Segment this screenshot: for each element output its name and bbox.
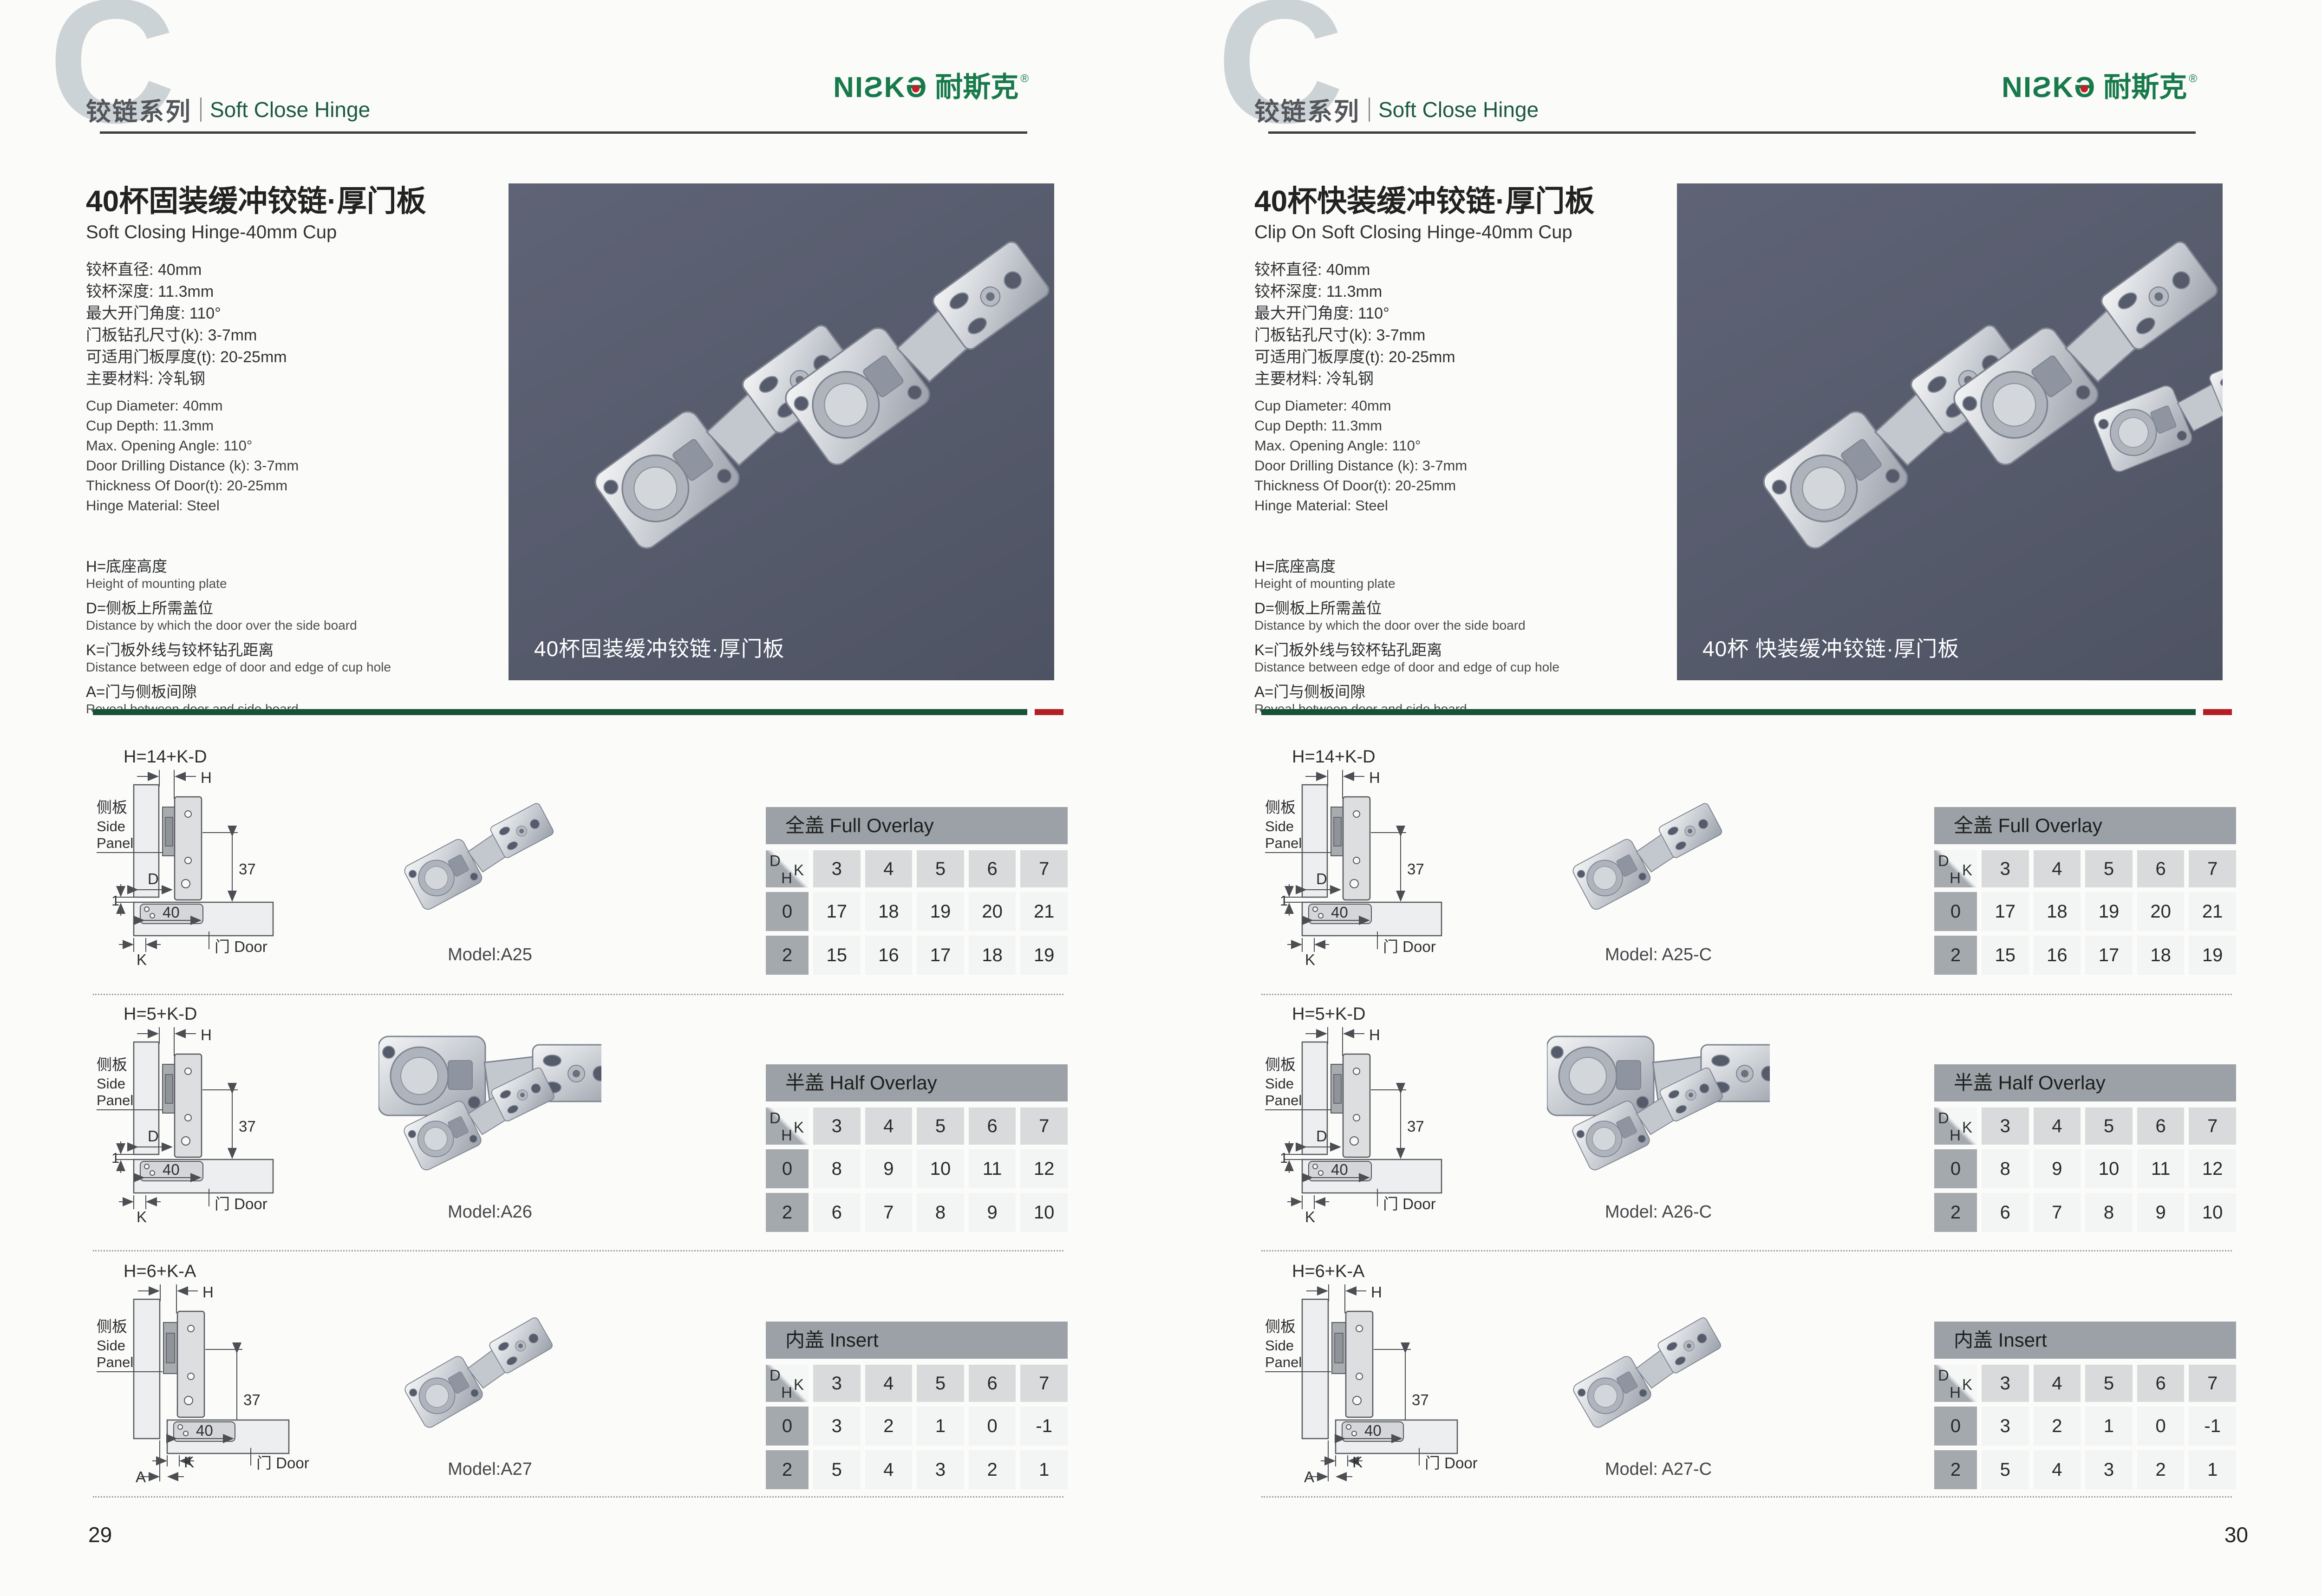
table-cell: 4 — [865, 1450, 913, 1489]
svg-text:门 Door: 门 Door — [215, 1195, 267, 1212]
series-title-en: Soft Close Hinge — [1378, 97, 1539, 122]
table-grid: D K H 3 4 5 6 7 0 8 9 10 11 12 2 6 7 8 9 — [766, 1107, 1068, 1232]
hinge-thumbnail — [378, 761, 601, 928]
specs-cn: 铰杯直径: 40mm 铰杯深度: 11.3mm 最大开门角度: 110° 门板钻… — [1254, 259, 1455, 390]
table-cell: 20 — [2137, 892, 2185, 931]
table-cell: 1 — [1020, 1450, 1068, 1489]
table-cell: 8 — [813, 1149, 861, 1188]
table-grid: D K H 3 4 5 6 7 0 3 2 1 0 -1 2 5 4 3 2 — [1934, 1365, 2236, 1489]
spec-line: 铰杯直径: 40mm — [1254, 259, 1455, 281]
table-cell: 15 — [1982, 936, 2029, 975]
brand-name-cn: 耐斯克 — [2103, 73, 2187, 101]
h-row-header: 2 — [766, 936, 809, 975]
table-cell: 12 — [2189, 1149, 2236, 1188]
svg-text:K: K — [1305, 1208, 1315, 1225]
table-cell: 10 — [1020, 1193, 1068, 1232]
dimension-legend: H=底座高度 Height of mounting plate D=侧板上所需盖… — [1254, 557, 1559, 724]
h-row-header: 2 — [766, 1193, 809, 1232]
h-row-header: 2 — [1934, 936, 1977, 975]
row-separator — [1261, 1496, 2232, 1498]
formula-label: H=14+K-D — [124, 747, 207, 767]
installation-diagram: H=5+K-D H 侧板 Side Panel 37 D — [1261, 999, 1526, 1250]
spec-line: Hinge Material: Steel — [86, 495, 299, 515]
dim-label-d: D — [148, 870, 159, 887]
table-cell: 18 — [2137, 936, 2185, 975]
table-grid: D K H 3 4 5 6 7 0 3 2 1 0 -1 2 5 4 3 2 — [766, 1365, 1068, 1489]
spec-line: 铰杯深度: 11.3mm — [86, 281, 287, 303]
table-cell: 6 — [1982, 1193, 2029, 1232]
svg-text:37: 37 — [1412, 1391, 1429, 1408]
k-header: 4 — [2034, 850, 2081, 887]
table-cell: 10 — [917, 1149, 964, 1188]
dim-label-40: 40 — [1331, 904, 1348, 921]
product-title-en: Clip On Soft Closing Hinge-40mm Cup — [1254, 222, 1572, 242]
series-header: 铰链系列 Soft Close Hinge — [86, 91, 370, 128]
table-cell: 20 — [969, 892, 1016, 931]
brand-o-glyph: Ə — [2074, 73, 2096, 102]
model-photo-column: Model:A25 — [358, 742, 622, 993]
table-cell: 17 — [813, 892, 861, 931]
svg-text:K: K — [184, 1453, 194, 1471]
dim-label-h: H — [201, 769, 212, 786]
hinge-thumbnail — [378, 1275, 601, 1442]
door-label: 门 Door — [1383, 938, 1436, 955]
model-photo-column: Model:A27 — [358, 1257, 622, 1507]
divider-green-bar — [93, 709, 1027, 715]
product-title-en: Soft Closing Hinge-40mm Cup — [86, 222, 337, 242]
table-cell: 8 — [917, 1193, 964, 1232]
model-number: Model:A25 — [358, 945, 622, 965]
k-header: 6 — [969, 850, 1016, 887]
hinge-thumbnail — [1547, 1275, 1770, 1442]
insert-diagram: H=6+K-A H 侧板 Side Panel 37 — [1261, 1257, 1521, 1489]
table-cell: 0 — [969, 1407, 1016, 1446]
page-number: 30 — [2224, 1522, 2248, 1547]
table-cell: 18 — [969, 936, 1016, 975]
k-header: 3 — [1982, 1107, 2029, 1145]
row-separator — [93, 1496, 1063, 1498]
table-cell: 9 — [2137, 1193, 2185, 1232]
dimension-legend: H=底座高度 Height of mounting plate D=侧板上所需盖… — [86, 557, 391, 724]
svg-text:门 Door: 门 Door — [256, 1454, 309, 1472]
k-header: 5 — [2085, 1365, 2133, 1402]
dim-label-k: K — [1305, 951, 1315, 968]
table-cell: 11 — [2137, 1149, 2185, 1188]
svg-text:37: 37 — [239, 1118, 256, 1135]
svg-text:Panel: Panel — [97, 1092, 133, 1108]
side-panel-label-en2: Panel — [97, 835, 133, 851]
h-row-header: 0 — [1934, 1407, 1977, 1446]
table-cell: 19 — [917, 892, 964, 931]
h-row-header: 0 — [1934, 1149, 1977, 1188]
series-title-cn: 铰链系列 — [1254, 91, 1360, 128]
svg-text:40: 40 — [163, 1161, 180, 1178]
k-header: 6 — [2137, 1107, 2185, 1145]
table-cell: 11 — [969, 1149, 1016, 1188]
side-panel-label-en1: Side — [1265, 818, 1294, 834]
table-cell: 16 — [2034, 936, 2081, 975]
formula-label: H=6+K-A — [124, 1262, 196, 1281]
spec-line: 可适用门板厚度(t): 20-25mm — [1254, 346, 1455, 368]
table-cell: 5 — [813, 1450, 861, 1489]
hinge-thumbnail — [1547, 761, 1770, 928]
model-photo-column: Model: A25-C — [1526, 742, 1791, 993]
dim-label-k: K — [137, 951, 147, 968]
dim-label-1: 1 — [1280, 892, 1288, 909]
table-title: 内盖 Insert — [1934, 1322, 2236, 1359]
k-header: 7 — [2189, 1107, 2236, 1145]
model-number: Model:A27 — [358, 1459, 622, 1479]
spec-line: Thickness Of Door(t): 20-25mm — [1254, 476, 1467, 495]
spec-line: Cup Depth: 11.3mm — [1254, 416, 1467, 436]
table-cell: -1 — [2189, 1407, 2236, 1446]
overlay-table: 全盖 Full Overlay D K H 3 4 5 6 7 0 17 18 … — [766, 807, 1068, 993]
table-corner-cell: D K H — [766, 1107, 809, 1145]
table-title: 全盖 Full Overlay — [766, 807, 1068, 844]
svg-text:Side: Side — [1265, 1337, 1294, 1354]
table-cell: 5 — [1982, 1450, 2029, 1489]
specs-en: Cup Diameter: 40mm Cup Depth: 11.3mm Max… — [86, 396, 299, 515]
spec-line: Door Drilling Distance (k): 3-7mm — [1254, 456, 1467, 476]
h-row-header: 2 — [1934, 1193, 1977, 1232]
svg-text:门 Door: 门 Door — [1425, 1454, 1478, 1472]
series-divider — [200, 98, 202, 122]
table-cell: 18 — [865, 892, 913, 931]
k-header: 6 — [969, 1107, 1016, 1145]
dim-label-37: 37 — [1407, 860, 1424, 878]
table-cell: 17 — [1982, 892, 2029, 931]
spec-line: 门板钻孔尺寸(k): 3-7mm — [86, 325, 287, 346]
svg-text:40: 40 — [196, 1422, 213, 1439]
table-cell: 6 — [813, 1193, 861, 1232]
product-info: 40杯快装缓冲铰链·厚门板 Clip On Soft Closing Hinge… — [1254, 186, 1663, 710]
legend-item: H=底座高度 Height of mounting plate — [86, 557, 391, 592]
header-rule — [1268, 131, 2196, 134]
product-title-cn: 40杯快装缓冲铰链·厚门板 — [1254, 186, 1595, 217]
spec-line: 门板钻孔尺寸(k): 3-7mm — [1254, 325, 1455, 346]
table-grid: D K H 3 4 5 6 7 0 17 18 19 20 21 2 15 16… — [766, 850, 1068, 975]
table-corner-cell: D K H — [766, 850, 809, 887]
spec-line: Cup Diameter: 40mm — [86, 396, 299, 416]
spec-line: Max. Opening Angle: 110° — [1254, 436, 1467, 456]
table-cell: 21 — [1020, 892, 1068, 931]
k-header: 4 — [865, 1107, 913, 1145]
table-cell: 15 — [813, 936, 861, 975]
svg-text:Side: Side — [97, 1075, 125, 1092]
svg-text:1: 1 — [111, 1150, 119, 1166]
header-rule — [100, 131, 1027, 134]
svg-text:H: H — [201, 1026, 212, 1043]
product-photo: 40杯固装缓冲铰链·厚门板 — [509, 183, 1054, 680]
installation-diagram: H=6+K-A H 侧板 Side Panel 37 — [93, 1257, 358, 1507]
svg-text:1: 1 — [1280, 1150, 1288, 1166]
legend-item: H=底座高度 Height of mounting plate — [1254, 557, 1559, 592]
spec-line: 可适用门板厚度(t): 20-25mm — [86, 346, 287, 368]
k-header: 7 — [1020, 1365, 1068, 1402]
table-title: 全盖 Full Overlay — [1934, 807, 2236, 844]
section-divider — [93, 709, 1063, 715]
model-number: Model: A26-C — [1526, 1202, 1791, 1222]
specs-cn: 铰杯直径: 40mm 铰杯深度: 11.3mm 最大开门角度: 110° 门板钻… — [86, 259, 287, 390]
table-cell: 9 — [865, 1149, 913, 1188]
catalog-page: C 铰链系列 Soft Close Hinge NIƧKƏ 耐斯克 ® 40杯固… — [0, 0, 1168, 1596]
table-cell: 9 — [2034, 1149, 2081, 1188]
table-title: 内盖 Insert — [766, 1322, 1068, 1359]
k-header: 3 — [1982, 850, 2029, 887]
k-header: 5 — [917, 1365, 964, 1402]
svg-text:侧板: 侧板 — [1265, 1318, 1296, 1335]
spec-row-half-overlay: H=5+K-D H 侧板 Side Panel 37 D — [93, 999, 1068, 1250]
spec-line: 最大开门角度: 110° — [1254, 303, 1455, 325]
table-cell: 3 — [813, 1407, 861, 1446]
k-header: 7 — [2189, 1365, 2236, 1402]
spec-line: 铰杯深度: 11.3mm — [1254, 281, 1455, 303]
table-cell: -1 — [1020, 1407, 1068, 1446]
svg-text:K: K — [1352, 1453, 1363, 1471]
table-grid: D K H 3 4 5 6 7 0 8 9 10 11 12 2 6 7 8 9 — [1934, 1107, 2236, 1232]
k-header: 3 — [813, 850, 861, 887]
brand-wordmark: NIƧKƏ — [833, 73, 927, 102]
overlay-diagram: H=14+K-D H 侧板 Side Panel 37 D — [93, 742, 353, 974]
h-row-header: 0 — [1934, 892, 1977, 931]
svg-text:40: 40 — [1364, 1422, 1382, 1439]
svg-text:侧板: 侧板 — [1265, 1056, 1296, 1073]
spec-row-full-overlay: H=14+K-D H 侧板 Side Panel 37 D — [93, 742, 1068, 993]
brand-o-glyph: Ə — [906, 73, 927, 102]
row-separator — [93, 994, 1063, 995]
table-cell: 12 — [1020, 1149, 1068, 1188]
svg-text:侧板: 侧板 — [97, 1056, 127, 1073]
table-cell: 10 — [2189, 1193, 2236, 1232]
overlay-table: 半盖 Half Overlay D K H 3 4 5 6 7 0 8 9 10… — [1934, 1064, 2236, 1250]
specs-en: Cup Diameter: 40mm Cup Depth: 11.3mm Max… — [1254, 396, 1467, 515]
catalog-page: C 铰链系列 Soft Close Hinge NIƧKƏ 耐斯克 ® 40杯快… — [1168, 0, 2322, 1596]
table-title: 半盖 Half Overlay — [766, 1064, 1068, 1101]
k-header: 5 — [917, 1107, 964, 1145]
model-photo-column: Model: A26-C — [1526, 999, 1791, 1250]
h-row-header: 0 — [766, 1149, 809, 1188]
table-cell: 19 — [2189, 936, 2236, 975]
installation-diagram: H=14+K-D H 侧板 Side Panel 37 D — [93, 742, 358, 993]
spec-line: Cup Diameter: 40mm — [1254, 396, 1467, 416]
svg-text:A: A — [136, 1468, 146, 1485]
overlay-table: 内盖 Insert D K H 3 4 5 6 7 0 3 2 1 0 -1 2 — [1934, 1322, 2236, 1507]
table-corner-cell: D K H — [1934, 850, 1977, 887]
svg-text:A: A — [1304, 1468, 1314, 1485]
k-header: 5 — [2085, 1107, 2133, 1145]
product-photo: 40杯 快装缓冲铰链·厚门板 — [1677, 183, 2223, 680]
table-grid: D K H 3 4 5 6 7 0 17 18 19 20 21 2 15 16… — [1934, 850, 2236, 975]
formula-label: H=5+K-D — [124, 1004, 197, 1024]
product-info: 40杯固装缓冲铰链·厚门板 Soft Closing Hinge-40mm Cu… — [86, 186, 495, 710]
spec-row-insert: H=6+K-A H 侧板 Side Panel 37 — [1261, 1257, 2236, 1507]
h-row-header: 2 — [766, 1450, 809, 1489]
model-number: Model: A25-C — [1526, 945, 1791, 965]
table-title: 半盖 Half Overlay — [1934, 1064, 2236, 1101]
hinge-photo-illustration — [1677, 183, 2223, 680]
table-corner-cell: D K H — [766, 1365, 809, 1402]
side-panel-label-cn: 侧板 — [97, 799, 127, 816]
table-cell: 17 — [917, 936, 964, 975]
spec-line: 主要材料: 冷轧钢 — [86, 368, 287, 390]
installation-diagram: H=6+K-A H 侧板 Side Panel 37 — [1261, 1257, 1526, 1507]
spec-line: 主要材料: 冷轧钢 — [1254, 368, 1455, 390]
overlay-diagram: H=14+K-D H 侧板 Side Panel 37 D — [1261, 742, 1521, 974]
svg-text:侧板: 侧板 — [97, 1318, 127, 1335]
table-cell: 19 — [2085, 892, 2133, 931]
brand-name-cn: 耐斯克 — [935, 73, 1018, 101]
divider-red-bar — [1035, 709, 1063, 715]
svg-text:Panel: Panel — [97, 1354, 133, 1370]
divider-red-bar — [2203, 709, 2232, 715]
legend-item: K=门板外线与铰杯钻孔距离 Distance between edge of d… — [86, 641, 391, 675]
table-corner-cell: D K H — [1934, 1365, 1977, 1402]
legend-item: K=门板外线与铰杯钻孔距离 Distance between edge of d… — [1254, 641, 1559, 675]
table-cell: 7 — [865, 1193, 913, 1232]
h-row-header: 2 — [1934, 1450, 1977, 1489]
table-cell: 8 — [2085, 1193, 2133, 1232]
hinge-thumbnail — [1547, 1018, 1770, 1185]
insert-diagram: H=6+K-A H 侧板 Side Panel 37 — [93, 1257, 353, 1489]
overlay-table: 半盖 Half Overlay D K H 3 4 5 6 7 0 8 9 10… — [766, 1064, 1068, 1250]
k-header: 4 — [2034, 1107, 2081, 1145]
spec-line: Door Drilling Distance (k): 3-7mm — [86, 456, 299, 476]
table-cell: 3 — [917, 1450, 964, 1489]
page-number: 29 — [88, 1522, 112, 1547]
table-cell: 9 — [969, 1193, 1016, 1232]
svg-text:H: H — [202, 1283, 214, 1301]
table-cell: 1 — [2189, 1450, 2236, 1489]
table-cell: 2 — [2034, 1407, 2081, 1446]
svg-text:Side: Side — [97, 1337, 125, 1354]
spec-line: 最大开门角度: 110° — [86, 303, 287, 325]
model-photo-column: Model: A27-C — [1526, 1257, 1791, 1507]
legend-item: D=侧板上所需盖位 Distance by which the door ove… — [86, 599, 391, 633]
registered-mark: ® — [2189, 73, 2197, 85]
brand-logo: NIƧKƏ 耐斯克 ® — [833, 73, 1029, 102]
side-panel-label-en1: Side — [97, 818, 125, 834]
series-header: 铰链系列 Soft Close Hinge — [1254, 91, 1539, 128]
dim-label-40: 40 — [163, 904, 180, 921]
photo-caption: 40杯 快装缓冲铰链·厚门板 — [1702, 632, 1959, 663]
k-header: 5 — [2085, 850, 2133, 887]
table-cell: 17 — [2085, 936, 2133, 975]
svg-text:H: H — [1371, 1283, 1382, 1301]
model-photo-column: Model:A26 — [358, 999, 622, 1250]
table-cell: 2 — [865, 1407, 913, 1446]
table-cell: 2 — [969, 1450, 1016, 1489]
model-number: Model: A27-C — [1526, 1459, 1791, 1479]
k-header: 6 — [969, 1365, 1016, 1402]
k-header: 7 — [1020, 1107, 1068, 1145]
brand-wordmark: NIƧKƏ — [2002, 73, 2096, 102]
k-header: 7 — [1020, 850, 1068, 887]
table-cell: 16 — [865, 936, 913, 975]
side-panel-label-cn: 侧板 — [1265, 799, 1296, 816]
table-corner-cell: D K H — [1934, 1107, 1977, 1145]
formula-label: H=6+K-A — [1292, 1262, 1365, 1281]
divider-green-bar — [1261, 709, 2196, 715]
product-title-cn: 40杯固装缓冲铰链·厚门板 — [86, 186, 426, 217]
table-cell: 18 — [2034, 892, 2081, 931]
series-divider — [1369, 98, 1370, 122]
registered-mark: ® — [1020, 73, 1029, 85]
k-header: 6 — [2137, 850, 2185, 887]
table-cell: 7 — [2034, 1193, 2081, 1232]
svg-text:Panel: Panel — [1265, 1092, 1302, 1108]
spec-line: Thickness Of Door(t): 20-25mm — [86, 476, 299, 495]
k-header: 3 — [1982, 1365, 2029, 1402]
k-header: 4 — [865, 850, 913, 887]
catalog-spread: C 铰链系列 Soft Close Hinge NIƧKƏ 耐斯克 ® 40杯固… — [0, 0, 2322, 1596]
svg-text:K: K — [137, 1208, 147, 1225]
dim-label-h: H — [1369, 769, 1380, 786]
svg-text:H: H — [1369, 1026, 1380, 1043]
spec-line: Hinge Material: Steel — [1254, 495, 1467, 515]
table-cell: 1 — [2085, 1407, 2133, 1446]
k-header: 6 — [2137, 1365, 2185, 1402]
overlay-table: 全盖 Full Overlay D K H 3 4 5 6 7 0 17 18 … — [1934, 807, 2236, 993]
spec-row-half-overlay: H=5+K-D H 侧板 Side Panel 37 D — [1261, 999, 2236, 1250]
svg-text:40: 40 — [1331, 1161, 1348, 1178]
k-header: 4 — [2034, 1365, 2081, 1402]
hinge-thumbnail — [378, 1018, 601, 1185]
overlay-diagram: H=5+K-D H 侧板 Side Panel 37 D — [1261, 999, 1521, 1231]
table-cell: 3 — [1982, 1407, 2029, 1446]
dim-label-d: D — [1316, 870, 1327, 887]
model-number: Model:A26 — [358, 1202, 622, 1222]
k-header: 7 — [2189, 850, 2236, 887]
dim-label-1: 1 — [111, 892, 119, 909]
installation-diagram: H=14+K-D H 侧板 Side Panel 37 D — [1261, 742, 1526, 993]
hinge-photo-illustration — [509, 183, 1054, 680]
legend-item: D=侧板上所需盖位 Distance by which the door ove… — [1254, 599, 1559, 633]
svg-text:D: D — [1316, 1127, 1327, 1145]
svg-text:Panel: Panel — [1265, 1354, 1302, 1370]
overlay-diagram: H=5+K-D H 侧板 Side Panel 37 D — [93, 999, 353, 1231]
brand-logo: NIƧKƏ 耐斯克 ® — [2002, 73, 2197, 102]
table-cell: 4 — [2034, 1450, 2081, 1489]
table-cell: 1 — [917, 1407, 964, 1446]
spec-row-full-overlay: H=14+K-D H 侧板 Side Panel 37 D — [1261, 742, 2236, 993]
table-cell: 10 — [2085, 1149, 2133, 1188]
table-cell: 2 — [2137, 1450, 2185, 1489]
svg-text:Side: Side — [1265, 1075, 1294, 1092]
photo-caption: 40杯固装缓冲铰链·厚门板 — [534, 632, 784, 663]
k-header: 4 — [865, 1365, 913, 1402]
spec-line: 铰杯直径: 40mm — [86, 259, 287, 281]
row-separator — [1261, 1250, 2232, 1251]
svg-text:D: D — [148, 1127, 159, 1145]
row-separator — [1261, 994, 2232, 995]
svg-text:37: 37 — [243, 1391, 261, 1408]
formula-label: H=14+K-D — [1292, 747, 1376, 767]
row-separator — [93, 1250, 1063, 1251]
dim-label-37: 37 — [239, 860, 256, 878]
spec-row-insert: H=6+K-A H 侧板 Side Panel 37 — [93, 1257, 1068, 1507]
spec-line: Max. Opening Angle: 110° — [86, 436, 299, 456]
k-header: 3 — [813, 1365, 861, 1402]
svg-text:门 Door: 门 Door — [1383, 1195, 1436, 1212]
table-cell: 21 — [2189, 892, 2236, 931]
series-title-cn: 铰链系列 — [86, 91, 192, 128]
section-divider — [1261, 709, 2232, 715]
k-header: 3 — [813, 1107, 861, 1145]
table-cell: 3 — [2085, 1450, 2133, 1489]
k-header: 5 — [917, 850, 964, 887]
svg-text:37: 37 — [1407, 1118, 1424, 1135]
formula-label: H=5+K-D — [1292, 1004, 1365, 1024]
